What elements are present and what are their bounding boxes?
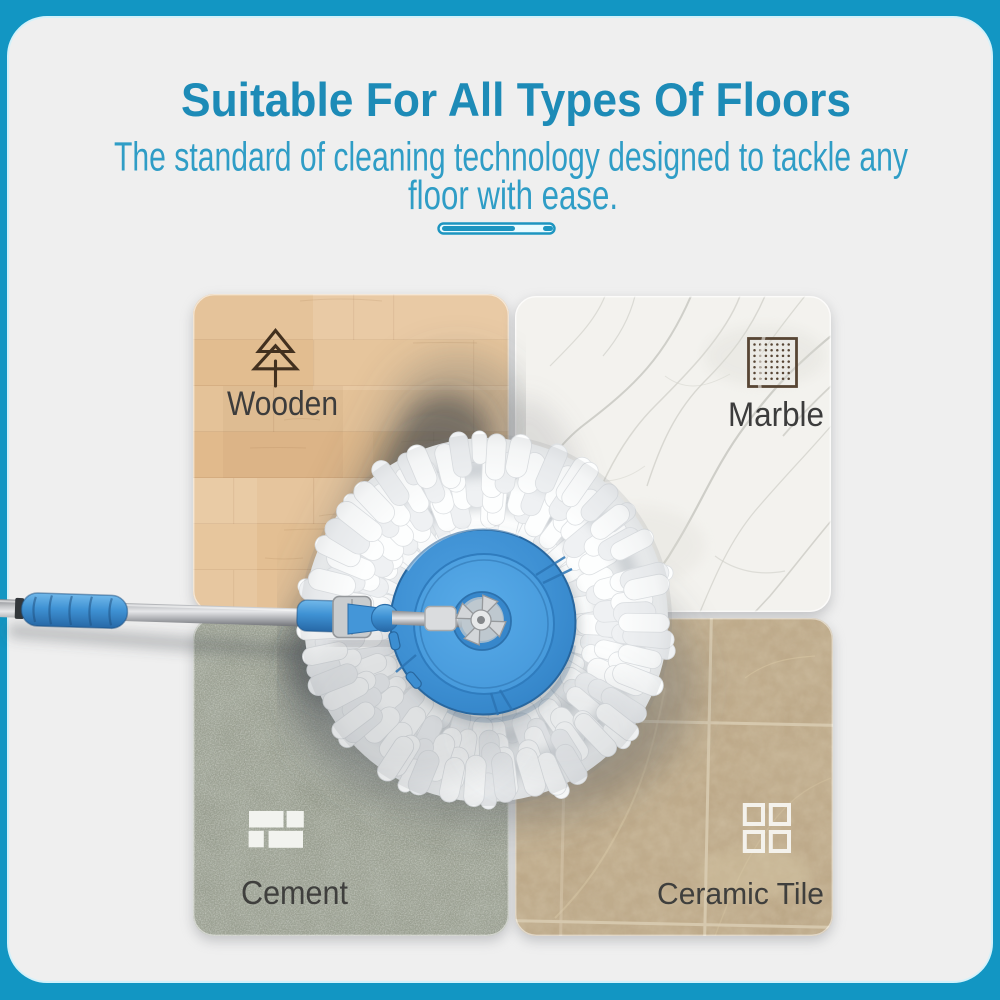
svg-text:Cement: Cement bbox=[241, 874, 348, 911]
svg-text:Marble: Marble bbox=[728, 396, 824, 434]
svg-text:Suitable For All Types Of Floo: Suitable For All Types Of Floors bbox=[181, 73, 851, 126]
svg-text:floor with ease.: floor with ease. bbox=[408, 172, 618, 218]
svg-text:Wooden: Wooden bbox=[227, 385, 338, 423]
svg-text:Ceramic Tile: Ceramic Tile bbox=[657, 876, 824, 911]
